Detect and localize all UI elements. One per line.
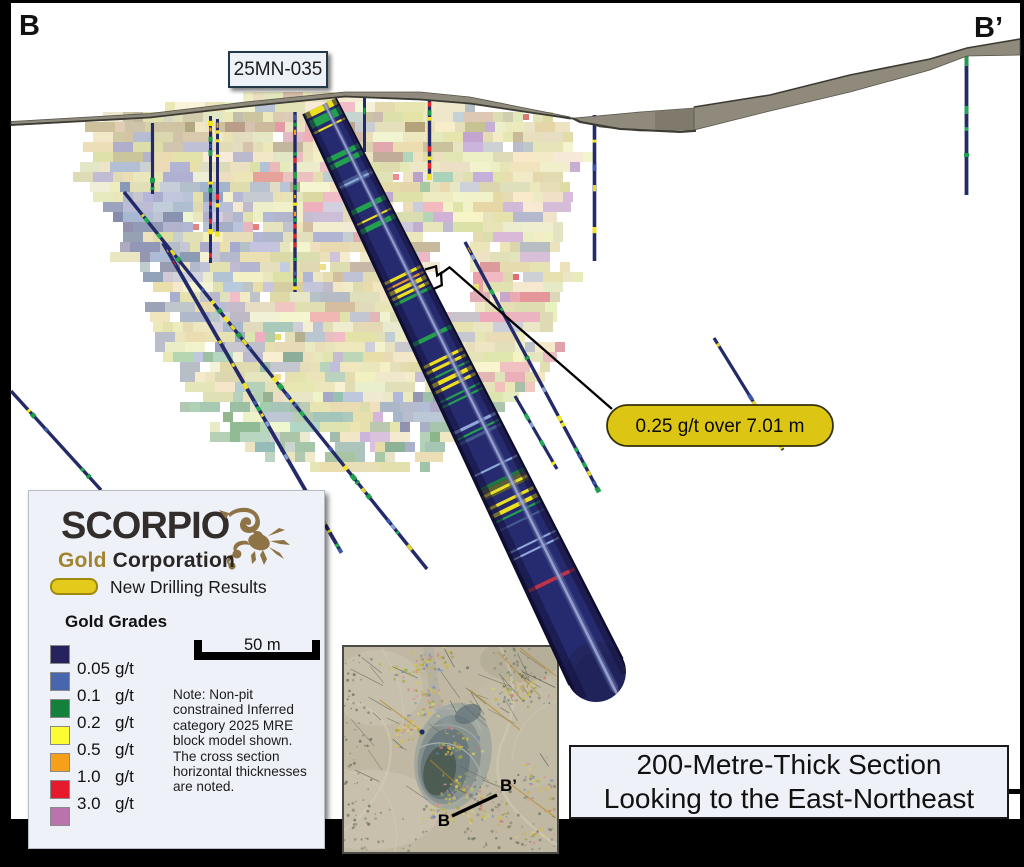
svg-text:0.25 g/t over 7.01 m: 0.25 g/t over 7.01 m [636, 416, 805, 437]
svg-text:B’: B’ [500, 776, 517, 795]
svg-text:B: B [438, 811, 450, 830]
